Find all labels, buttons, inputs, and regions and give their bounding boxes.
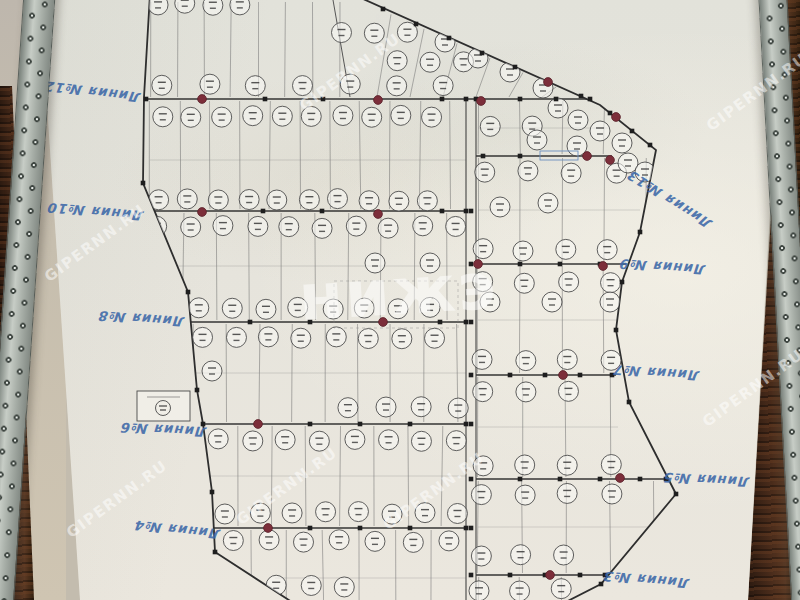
photo-plot-plan: Линия №12 Линия №10 Линия №8 Линия №6 Ли… <box>0 0 800 600</box>
watermark-logo: нижэ <box>297 249 500 335</box>
